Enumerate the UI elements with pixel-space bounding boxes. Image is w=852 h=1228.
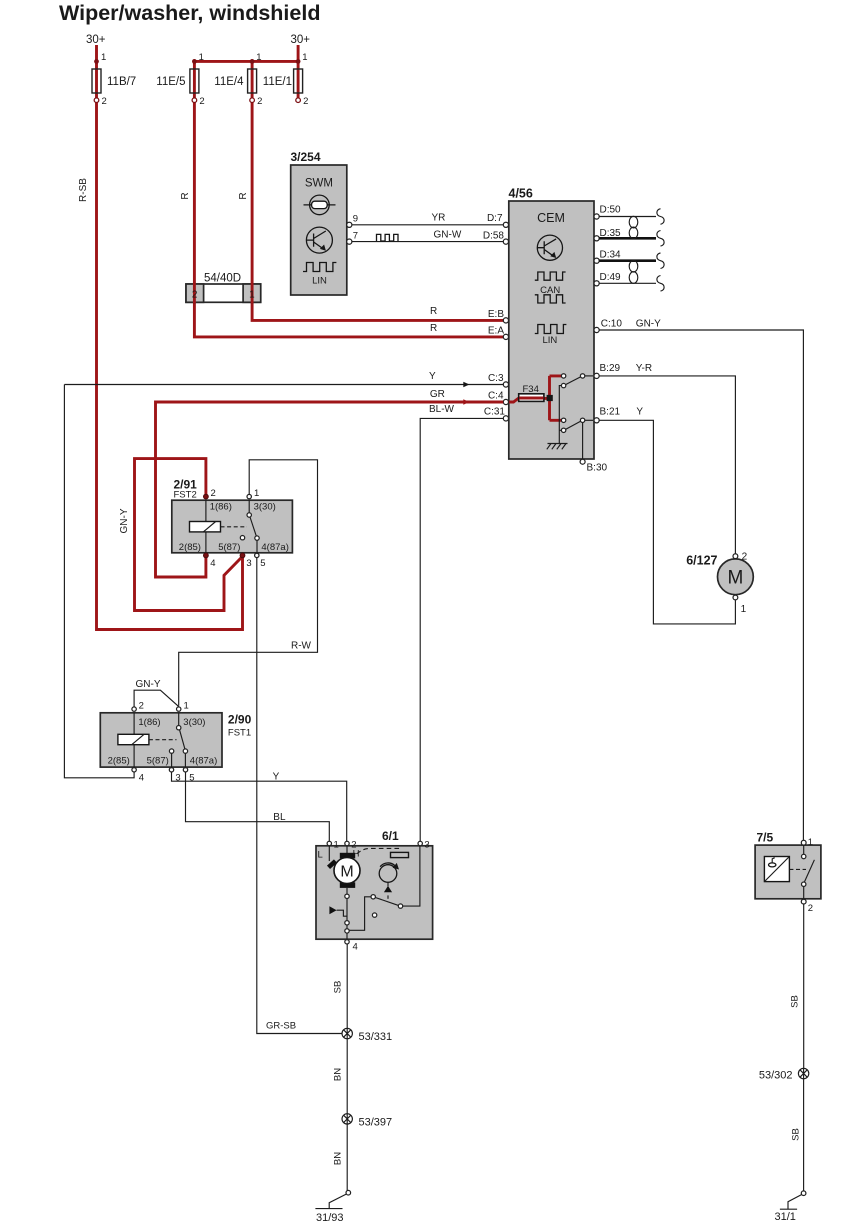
svg-text:31/1: 31/1 — [775, 1211, 796, 1223]
svg-text:2: 2 — [192, 290, 198, 301]
svg-text:C:4: C:4 — [488, 391, 504, 402]
svg-text:1: 1 — [334, 840, 339, 851]
svg-text:LIN: LIN — [312, 276, 327, 287]
svg-text:E:B: E:B — [488, 309, 504, 320]
svg-text:5(87): 5(87) — [147, 755, 169, 766]
svg-text:30+: 30+ — [86, 34, 106, 46]
svg-text:D:58: D:58 — [483, 231, 505, 242]
svg-text:11E/4: 11E/4 — [214, 76, 244, 88]
svg-text:M: M — [340, 863, 353, 880]
svg-text:B:29: B:29 — [600, 363, 621, 374]
svg-text:11B/7: 11B/7 — [107, 76, 136, 88]
svg-text:2: 2 — [257, 96, 262, 107]
svg-text:D:49: D:49 — [600, 272, 622, 283]
svg-text:D:7: D:7 — [487, 213, 503, 224]
svg-text:SB: SB — [333, 981, 344, 994]
svg-text:53/331: 53/331 — [359, 1031, 393, 1043]
svg-text:2: 2 — [102, 96, 107, 107]
svg-text:1: 1 — [254, 488, 259, 499]
svg-text:3/254: 3/254 — [291, 150, 321, 164]
svg-text:BL: BL — [273, 812, 286, 823]
svg-text:CAN: CAN — [540, 285, 560, 296]
svg-text:1: 1 — [741, 604, 747, 615]
svg-text:3: 3 — [424, 840, 429, 851]
svg-text:C:31: C:31 — [484, 407, 506, 418]
svg-text:30+: 30+ — [291, 34, 311, 46]
svg-text:1: 1 — [101, 52, 106, 63]
svg-text:FST1: FST1 — [228, 727, 251, 738]
svg-text:E:A: E:A — [488, 326, 504, 337]
svg-text:Y: Y — [273, 772, 280, 783]
svg-text:B:21: B:21 — [600, 406, 621, 417]
svg-text:5(87): 5(87) — [218, 542, 240, 553]
svg-text:2: 2 — [742, 552, 748, 563]
svg-text:C:3: C:3 — [488, 373, 504, 384]
svg-text:LIN: LIN — [543, 335, 558, 346]
svg-text:M: M — [727, 568, 743, 589]
svg-text:9: 9 — [353, 214, 358, 225]
svg-text:1: 1 — [199, 52, 204, 63]
svg-text:54/40D: 54/40D — [204, 273, 241, 285]
svg-text:1: 1 — [249, 290, 255, 301]
svg-text:Wiper/washer, windshield: Wiper/washer, windshield — [59, 1, 320, 25]
svg-text:3: 3 — [246, 558, 251, 569]
svg-text:GN-Y: GN-Y — [119, 508, 130, 533]
svg-text:GR: GR — [430, 389, 445, 400]
svg-text:11E/1: 11E/1 — [263, 76, 292, 88]
svg-text:53/302: 53/302 — [759, 1070, 793, 1082]
svg-text:D:50: D:50 — [600, 205, 622, 216]
svg-text:1(86): 1(86) — [138, 717, 160, 728]
svg-text:SWM: SWM — [305, 178, 333, 190]
svg-text:1: 1 — [184, 701, 189, 712]
svg-text:2/90: 2/90 — [228, 713, 252, 727]
svg-text:R-W: R-W — [291, 641, 312, 652]
svg-text:YR: YR — [432, 212, 446, 223]
svg-text:4(87a): 4(87a) — [190, 755, 217, 766]
svg-text:7: 7 — [353, 230, 358, 241]
svg-text:6/127: 6/127 — [686, 554, 717, 568]
svg-text:R-SB: R-SB — [78, 178, 89, 202]
svg-text:7/5: 7/5 — [757, 831, 774, 845]
svg-text:R: R — [430, 306, 437, 317]
svg-text:53/397: 53/397 — [359, 1117, 393, 1129]
svg-text:R: R — [238, 192, 249, 199]
svg-text:2: 2 — [303, 96, 308, 107]
svg-text:2: 2 — [211, 488, 216, 499]
svg-text:2: 2 — [808, 903, 813, 914]
svg-text:C:10: C:10 — [601, 318, 623, 329]
svg-text:L: L — [318, 850, 323, 861]
svg-text:2: 2 — [199, 96, 204, 107]
svg-text:4: 4 — [139, 773, 144, 784]
svg-text:4/56: 4/56 — [509, 187, 533, 201]
svg-text:11E/5: 11E/5 — [156, 76, 185, 88]
svg-text:4: 4 — [210, 558, 215, 569]
svg-text:B:30: B:30 — [587, 463, 608, 474]
svg-text:GN-Y: GN-Y — [636, 318, 661, 329]
svg-text:2(85): 2(85) — [108, 755, 130, 766]
svg-text:2(85): 2(85) — [179, 542, 201, 553]
svg-text:BN: BN — [333, 1152, 344, 1165]
svg-text:2: 2 — [139, 701, 144, 712]
svg-text:Y: Y — [429, 371, 436, 382]
svg-text:5: 5 — [189, 773, 194, 784]
svg-text:31/93: 31/93 — [316, 1212, 344, 1224]
svg-text:GN-Y: GN-Y — [136, 679, 161, 690]
svg-text:1: 1 — [808, 837, 813, 848]
svg-text:R: R — [180, 192, 191, 199]
svg-text:4: 4 — [353, 942, 358, 953]
svg-text:GR-SB: GR-SB — [266, 1021, 296, 1032]
svg-text:5: 5 — [260, 558, 265, 569]
svg-text:SB: SB — [790, 995, 801, 1008]
svg-text:BN: BN — [333, 1068, 344, 1081]
svg-text:3(30): 3(30) — [183, 717, 205, 728]
svg-text:FST2: FST2 — [174, 490, 197, 501]
svg-text:D:34: D:34 — [600, 250, 622, 261]
svg-text:Y: Y — [636, 406, 643, 417]
svg-text:3(30): 3(30) — [254, 502, 276, 513]
svg-text:CEM: CEM — [537, 211, 565, 225]
svg-text:GN-W: GN-W — [434, 229, 462, 240]
svg-text:1: 1 — [256, 52, 261, 63]
svg-text:6/1: 6/1 — [382, 829, 399, 843]
svg-text:SB: SB — [791, 1128, 802, 1141]
svg-text:BL-W: BL-W — [429, 404, 455, 415]
svg-text:R: R — [430, 323, 437, 334]
svg-text:Y-R: Y-R — [636, 363, 652, 374]
svg-text:1(86): 1(86) — [210, 502, 232, 513]
svg-text:4(87a): 4(87a) — [261, 542, 288, 553]
svg-text:1: 1 — [302, 52, 307, 63]
svg-text:3: 3 — [175, 773, 180, 784]
